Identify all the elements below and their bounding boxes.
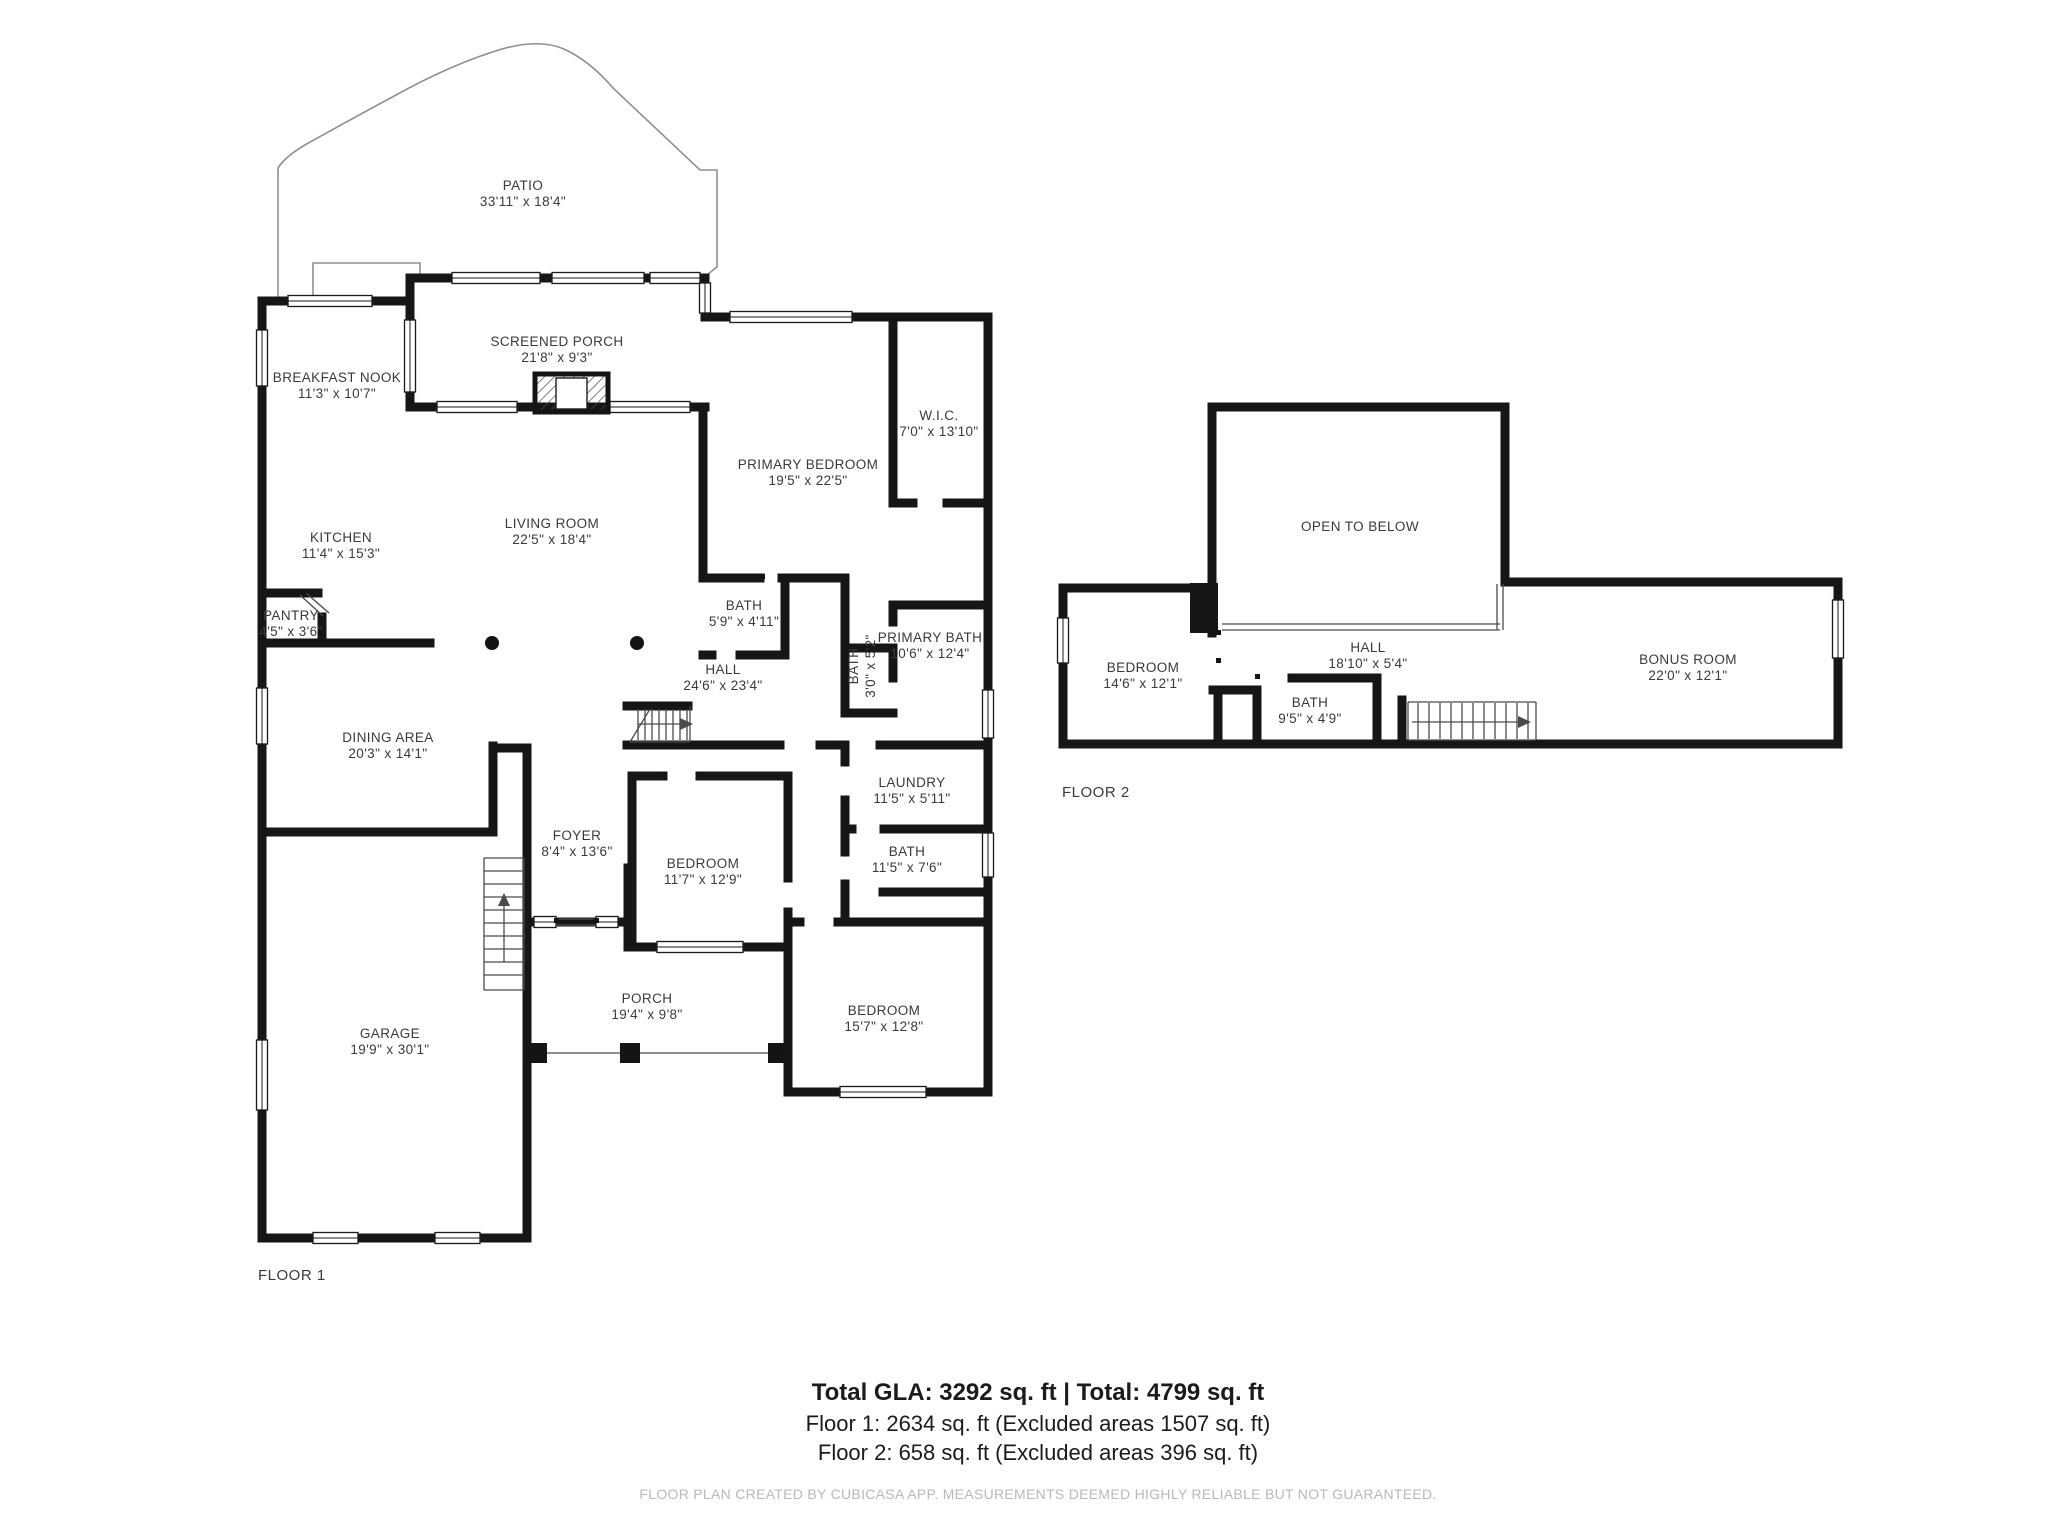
room-dims-kitchen: 11'4" x 15'3" — [302, 546, 380, 561]
room-dims-bedroom3: 15'7" x 12'8" — [844, 1019, 923, 1034]
door-tick — [836, 741, 841, 746]
room-label-living-room: LIVING ROOM — [505, 516, 599, 531]
room-dims-wic: 7'0" x 13'10" — [899, 424, 978, 439]
room-label-bath-f2: BATH — [1292, 695, 1329, 710]
room-label-wic: W.I.C. — [919, 408, 958, 423]
room-dims-garage: 19'9" x 30'1" — [350, 1042, 429, 1057]
door-tick — [594, 918, 599, 923]
floor1-label: FLOOR 1 — [258, 1267, 326, 1284]
room-label-dining-area: DINING AREA — [342, 730, 433, 745]
room-dims-small-bath: 3'0" x 5'2" — [863, 634, 878, 697]
room-label-porch: PORCH — [622, 991, 673, 1006]
door-tick — [836, 918, 841, 923]
room-dims-laundry: 11'5" x 5'11" — [873, 791, 950, 806]
room-dims-bath: 5'9" x 4'11" — [709, 614, 779, 629]
door-tick — [698, 772, 703, 777]
summary-block: Total GLA: 3292 sq. ft | Total: 4799 sq.… — [639, 1379, 1436, 1502]
door-tick — [1290, 674, 1295, 679]
room-label-small-bath: BATH — [846, 648, 861, 685]
room-label-screened-porch: SCREENED PORCH — [490, 334, 623, 349]
door-tick — [296, 589, 301, 594]
door-tick — [945, 499, 950, 504]
room-label-primary-bedroom: PRIMARY BEDROOM — [738, 457, 879, 472]
room-label-bath: BATH — [726, 598, 763, 613]
room-label-bedroom2: BEDROOM — [667, 856, 740, 871]
room-label-bath2: BATH — [889, 844, 926, 859]
door-tick — [843, 800, 848, 805]
room-dims-hall: 24'6" x 23'4" — [683, 678, 762, 693]
door-tick — [760, 574, 765, 579]
room-dims-screened-porch: 21'8" x 9'3" — [521, 350, 592, 365]
patio-outline — [278, 44, 717, 300]
room-label-hall-f2: HALL — [1350, 640, 1385, 655]
room-label-patio: PATIO — [503, 178, 544, 193]
door-tick — [661, 772, 666, 777]
room-label-kitchen: KITCHEN — [310, 530, 372, 545]
column-dot — [630, 636, 644, 650]
door-tick — [780, 574, 785, 579]
room-dims-pantry: 4'5" x 3'6" — [259, 624, 322, 639]
room-label-pantry: PANTRY — [263, 608, 319, 623]
porch-pillar — [620, 1043, 640, 1063]
summary-floor1: Floor 1: 2634 sq. ft (Excluded areas 150… — [806, 1411, 1271, 1436]
room-label-open-to-below: OPEN TO BELOW — [1301, 519, 1419, 534]
room-label-bedroom-f2: BEDROOM — [1107, 660, 1180, 675]
room-dims-primary-bedroom: 19'5" x 22'5" — [768, 473, 847, 488]
room-dims-breakfast-nook: 11'3" x 10'7" — [298, 386, 376, 401]
column-dot — [485, 636, 499, 650]
door-tick — [1216, 658, 1221, 663]
door-tick — [878, 741, 883, 746]
room-label-garage: GARAGE — [360, 1026, 420, 1041]
stair-arrow-up — [498, 893, 510, 906]
room-label-laundry: LAUNDRY — [878, 775, 945, 790]
room-dims-bedroom-f2: 14'6" x 12'1" — [1103, 676, 1182, 691]
floor1-labels: PATIO 33'11" x 18'4" SCREENED PORCH 21'8… — [258, 178, 982, 1284]
room-dims-hall-f2: 18'10" x 5'4" — [1328, 656, 1407, 671]
stair-arrow-right — [1518, 716, 1531, 728]
door-tick — [843, 760, 848, 765]
summary-total: Total GLA: 3292 sq. ft | Total: 4799 sq.… — [812, 1379, 1265, 1406]
door-tick — [1255, 674, 1260, 679]
floor2-label: FLOOR 2 — [1062, 784, 1130, 801]
room-dims-primary-bath: 10'6" x 12'4" — [890, 646, 969, 661]
room-dims-bath2: 11'5" x 7'6" — [872, 860, 942, 875]
wall-block — [1190, 583, 1218, 633]
floor-plan-page: PATIO 33'11" x 18'4" SCREENED PORCH 21'8… — [0, 0, 2048, 1536]
room-dims-bath-f2: 9'5" x 4'9" — [1278, 711, 1341, 726]
room-dims-porch: 19'4" x 9'8" — [611, 1007, 682, 1022]
porch-pillar — [527, 1043, 547, 1063]
room-dims-patio: 33'11" x 18'4" — [480, 194, 566, 209]
room-label-breakfast-nook: BREAKFAST NOOK — [273, 370, 401, 385]
room-label-bonus-room: BONUS ROOM — [1639, 652, 1737, 667]
room-dims-foyer: 8'4" x 13'6" — [541, 844, 612, 859]
fireplace — [535, 374, 608, 412]
room-label-hall: HALL — [705, 662, 740, 677]
door-tick — [1216, 630, 1221, 635]
thin-line — [630, 709, 650, 742]
footer-note: FLOOR PLAN CREATED BY CUBICASA APP. MEAS… — [639, 1486, 1436, 1502]
door-tick — [798, 918, 803, 923]
door-tick — [554, 918, 559, 923]
room-dims-dining-area: 20'3" x 14'1" — [348, 746, 427, 761]
room-label-primary-bath: PRIMARY BATH — [878, 630, 983, 645]
floor2-labels: OPEN TO BELOW BEDROOM 14'6" x 12'1" HALL… — [1062, 519, 1737, 801]
floor-plan-svg: PATIO 33'11" x 18'4" SCREENED PORCH 21'8… — [0, 0, 2048, 1536]
room-dims-living-room: 22'5" x 18'4" — [512, 532, 591, 547]
summary-floor2: Floor 2: 658 sq. ft (Excluded areas 396 … — [818, 1440, 1258, 1465]
room-label-foyer: FOYER — [553, 828, 602, 843]
room-label-bedroom3: BEDROOM — [848, 1003, 921, 1018]
room-dims-bonus-room: 22'0" x 12'1" — [1648, 668, 1727, 683]
porch-pillar — [768, 1043, 788, 1063]
door-tick — [911, 499, 916, 504]
room-dims-bedroom2: 11'7" x 12'9" — [664, 872, 742, 887]
